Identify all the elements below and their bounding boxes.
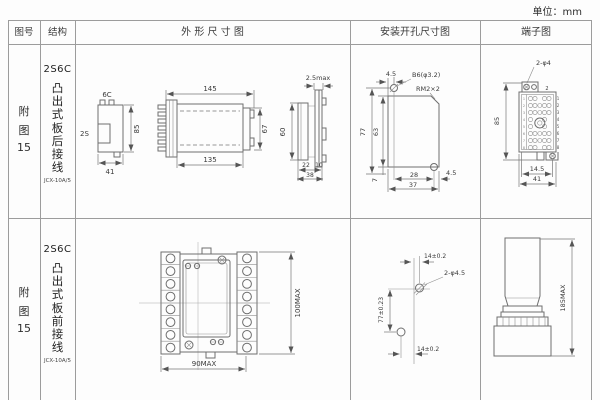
dim-label: 28 — [410, 171, 418, 179]
dim-label: 85 — [493, 117, 501, 125]
dim-label: 38 — [306, 172, 314, 179]
dim-label: 22 — [302, 162, 310, 169]
table-hline-row — [8, 218, 592, 219]
dim-label: 4.5 — [446, 169, 456, 177]
terminal-diagram-row1: 2-φ4 2 1 2 3 4 5 — [480, 46, 592, 216]
dim-label: 14±0.2 — [417, 346, 439, 353]
structure-model-row1: 2S6C — [40, 64, 75, 75]
svg-text:6: 6 — [557, 131, 560, 136]
dim-label: 14±0.2 — [424, 253, 446, 260]
dim-label: 10 — [315, 162, 323, 169]
header-terminal: 端子图 — [480, 25, 592, 41]
dim-label: 90MAX — [192, 360, 217, 368]
dim-label: 14.5 — [530, 165, 544, 173]
hole-callout: 2-φ4.5 — [444, 269, 465, 277]
header-outline: 外 形 尺 寸 图 — [75, 25, 350, 41]
svg-text:2: 2 — [523, 104, 525, 108]
cutout-plate — [388, 84, 439, 171]
relay-side-view — [158, 100, 254, 157]
dim-label: 145 — [203, 85, 216, 93]
outline-diagram-row2: 100MAX 90MAX — [78, 222, 350, 398]
dim-label: 6C — [102, 91, 111, 99]
dim-label: 4.5 — [386, 70, 396, 78]
svg-text:6: 6 — [523, 132, 525, 136]
hole-callout: B6(φ3.2) — [412, 71, 440, 79]
hole-callout: 2-φ4 — [536, 59, 551, 67]
dim-label: 2.5max — [306, 74, 331, 82]
pin-numbers-right: 1 2 3 4 5 6 7 8 — [557, 96, 560, 150]
dim-label: 100MAX — [294, 288, 302, 317]
terminal-holes — [528, 96, 551, 149]
dim-label: 37 — [409, 181, 417, 189]
dim-label: 85 — [133, 125, 141, 134]
header-structure: 结构 — [40, 25, 75, 41]
dim-label: 63 — [372, 128, 380, 136]
relay-in-socket-side-view — [494, 238, 551, 356]
figure-no-row1: 15 — [8, 141, 40, 154]
dim-label: 77 — [359, 128, 367, 136]
case-section-view — [98, 100, 123, 157]
svg-text:4: 4 — [523, 118, 525, 122]
svg-text:1: 1 — [557, 96, 560, 101]
header-install: 安装开孔尺寸图 — [350, 25, 480, 41]
dim-label: 60 — [279, 128, 287, 137]
svg-text:1: 1 — [523, 97, 525, 101]
figure-no-row2: 图 — [8, 303, 40, 319]
svg-text:2: 2 — [557, 103, 560, 108]
svg-text:8: 8 — [523, 146, 525, 150]
dim-label: 185MAX — [559, 284, 567, 311]
dim-label: 7 — [371, 178, 379, 182]
svg-text:5: 5 — [557, 124, 560, 129]
dim-label: 2S — [80, 130, 89, 138]
header-figure-no: 图号 — [8, 25, 40, 41]
figure-no-row2: 附 — [8, 284, 40, 300]
outline-diagram-row1: 6C 2S 85 41 145 135 67 2.5max 60 22 10 3… — [78, 46, 350, 216]
structure-desc-row1: 凸出式板后接线 — [40, 82, 75, 175]
corner-callout: RM2×2 — [416, 85, 440, 93]
svg-text:5: 5 — [523, 125, 525, 129]
table-hline-header — [8, 44, 592, 45]
figure-no-row1: 图 — [8, 122, 40, 138]
svg-text:3: 3 — [557, 110, 560, 115]
dim-label: 41 — [106, 168, 115, 176]
figure-no-row1: 附 — [8, 103, 40, 119]
structure-code-row1: JCX-10A/5 — [40, 178, 75, 184]
dim-label: 41 — [533, 175, 541, 183]
structure-model-row2: 2S6C — [40, 244, 75, 255]
structure-desc-row2: 凸出式板前接线 — [40, 262, 75, 355]
svg-text:4: 4 — [557, 117, 560, 122]
drill-holes — [397, 283, 427, 337]
svg-text:8: 8 — [557, 145, 560, 150]
install-diagram-row1: 4.5 B6(φ3.2) RM2×2 77 63 7 28 4.5 37 — [350, 46, 480, 216]
table-vline-2 — [75, 20, 76, 400]
figure-no-row2: 15 — [8, 322, 40, 335]
svg-text:3: 3 — [523, 111, 525, 115]
pin-label: 2 — [545, 86, 548, 92]
panel-rear-view — [298, 90, 326, 167]
pin-numbers-left: 1 2 3 4 5 6 7 8 — [523, 97, 525, 150]
dim-label: 135 — [203, 156, 216, 164]
svg-text:7: 7 — [523, 139, 525, 143]
dim-label: 67 — [261, 125, 269, 134]
dim-label: 77±0.23 — [378, 297, 385, 323]
install-diagram-row2: 14±0.2 2-φ4.5 77±0.23 14±0.2 — [350, 222, 480, 398]
structure-code-row2: JCX-10A/5 — [40, 358, 75, 364]
svg-text:7: 7 — [557, 138, 560, 143]
terminal-diagram-row2: 185MAX — [480, 222, 592, 398]
unit-label: 单位：mm — [533, 3, 582, 18]
